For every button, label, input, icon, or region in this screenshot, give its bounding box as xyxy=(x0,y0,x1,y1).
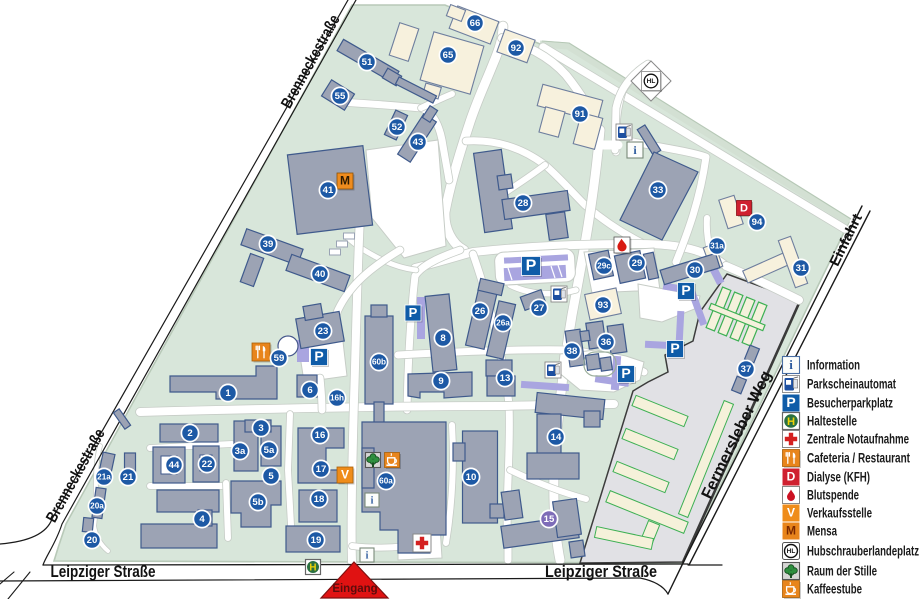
svg-text:6: 6 xyxy=(307,385,312,396)
svg-text:Hubschrauberlandeplatz: Hubschrauberlandeplatz xyxy=(807,544,919,559)
svg-text:Kaffeestube: Kaffeestube xyxy=(807,582,862,597)
svg-text:M: M xyxy=(340,174,350,188)
svg-text:51: 51 xyxy=(362,57,373,68)
svg-text:17: 17 xyxy=(316,464,327,475)
svg-text:20: 20 xyxy=(87,535,98,546)
svg-text:3a: 3a xyxy=(235,446,246,457)
svg-text:94: 94 xyxy=(752,217,763,228)
svg-text:31a: 31a xyxy=(710,242,724,251)
svg-text:93: 93 xyxy=(598,300,609,311)
svg-text:38: 38 xyxy=(567,346,578,357)
svg-text:P: P xyxy=(621,365,630,381)
svg-text:P: P xyxy=(681,282,690,298)
svg-text:29: 29 xyxy=(632,258,643,269)
svg-text:V: V xyxy=(341,468,349,482)
svg-text:40: 40 xyxy=(315,269,326,280)
svg-text:H: H xyxy=(787,416,795,428)
svg-text:31: 31 xyxy=(796,263,807,274)
svg-text:4: 4 xyxy=(199,514,205,525)
svg-text:Zentrale Notaufnahme: Zentrale Notaufnahme xyxy=(807,432,909,447)
svg-text:Dialyse (KFH): Dialyse (KFH) xyxy=(807,470,870,485)
svg-text:65: 65 xyxy=(443,50,454,61)
svg-text:P: P xyxy=(670,340,679,356)
svg-text:60a: 60a xyxy=(379,477,393,486)
svg-text:21: 21 xyxy=(123,472,134,483)
svg-text:60b: 60b xyxy=(372,358,386,367)
svg-text:15: 15 xyxy=(544,514,555,525)
svg-text:Leipziger Straße: Leipziger Straße xyxy=(51,563,156,581)
svg-text:55: 55 xyxy=(335,91,346,102)
svg-text:Eingang: Eingang xyxy=(332,583,377,595)
svg-text:D: D xyxy=(787,470,796,484)
svg-text:Haltestelle: Haltestelle xyxy=(807,414,857,429)
svg-text:5: 5 xyxy=(268,471,274,482)
svg-text:Parkscheinautomat: Parkscheinautomat xyxy=(807,377,896,392)
svg-text:26a: 26a xyxy=(496,319,510,328)
svg-text:36: 36 xyxy=(601,337,612,348)
svg-text:66: 66 xyxy=(470,18,481,29)
svg-text:28: 28 xyxy=(518,198,529,209)
svg-text:i: i xyxy=(789,357,793,372)
svg-text:i: i xyxy=(366,550,369,561)
svg-text:HL: HL xyxy=(787,548,796,555)
svg-text:41: 41 xyxy=(323,185,334,196)
svg-text:23: 23 xyxy=(318,326,329,337)
svg-text:44: 44 xyxy=(169,460,180,471)
svg-text:M: M xyxy=(786,524,796,538)
svg-text:20a: 20a xyxy=(90,502,104,511)
svg-text:D: D xyxy=(740,202,748,214)
svg-text:i: i xyxy=(371,495,374,506)
svg-text:14: 14 xyxy=(551,432,562,443)
svg-text:V: V xyxy=(787,506,795,520)
svg-text:1: 1 xyxy=(225,388,231,399)
svg-text:21a: 21a xyxy=(97,473,111,482)
svg-text:30: 30 xyxy=(690,265,701,276)
svg-text:Leipziger Straße: Leipziger Straße xyxy=(545,563,657,581)
svg-text:Cafeteria / Restaurant: Cafeteria / Restaurant xyxy=(807,451,910,466)
svg-text:5a: 5a xyxy=(264,445,275,456)
svg-text:Besucherparkplatz: Besucherparkplatz xyxy=(807,396,893,411)
svg-text:Mensa: Mensa xyxy=(807,524,837,539)
svg-text:Verkaufsstelle: Verkaufsstelle xyxy=(807,506,872,521)
svg-text:18: 18 xyxy=(314,494,325,505)
svg-text:8: 8 xyxy=(440,333,446,344)
svg-text:37: 37 xyxy=(741,364,752,375)
svg-text:19: 19 xyxy=(311,535,322,546)
svg-text:3: 3 xyxy=(258,423,263,434)
svg-text:P: P xyxy=(526,258,537,275)
svg-text:27: 27 xyxy=(534,303,545,314)
svg-text:43: 43 xyxy=(413,137,424,148)
svg-text:Blutspende: Blutspende xyxy=(807,488,859,503)
svg-text:HL: HL xyxy=(647,78,656,85)
svg-text:26: 26 xyxy=(475,306,486,317)
svg-text:P: P xyxy=(314,348,323,364)
svg-text:33: 33 xyxy=(653,185,664,196)
svg-text:Raum der Stille: Raum der Stille xyxy=(807,564,877,579)
svg-text:Information: Information xyxy=(807,358,860,373)
svg-text:10: 10 xyxy=(466,472,477,483)
svg-text:22: 22 xyxy=(202,459,213,470)
svg-text:2: 2 xyxy=(187,428,192,439)
svg-text:52: 52 xyxy=(392,122,403,133)
svg-text:5b: 5b xyxy=(252,497,263,508)
svg-text:16h: 16h xyxy=(330,394,344,403)
svg-text:92: 92 xyxy=(511,43,522,54)
svg-text:13: 13 xyxy=(500,373,511,384)
svg-text:9: 9 xyxy=(438,376,443,387)
svg-text:P: P xyxy=(409,305,418,320)
svg-text:H: H xyxy=(309,562,316,573)
svg-text:P: P xyxy=(786,394,795,410)
svg-text:29c: 29c xyxy=(597,262,611,271)
svg-text:39: 39 xyxy=(263,239,274,250)
svg-text:91: 91 xyxy=(575,109,586,120)
svg-text:59: 59 xyxy=(274,353,285,364)
svg-text:16: 16 xyxy=(315,430,326,441)
